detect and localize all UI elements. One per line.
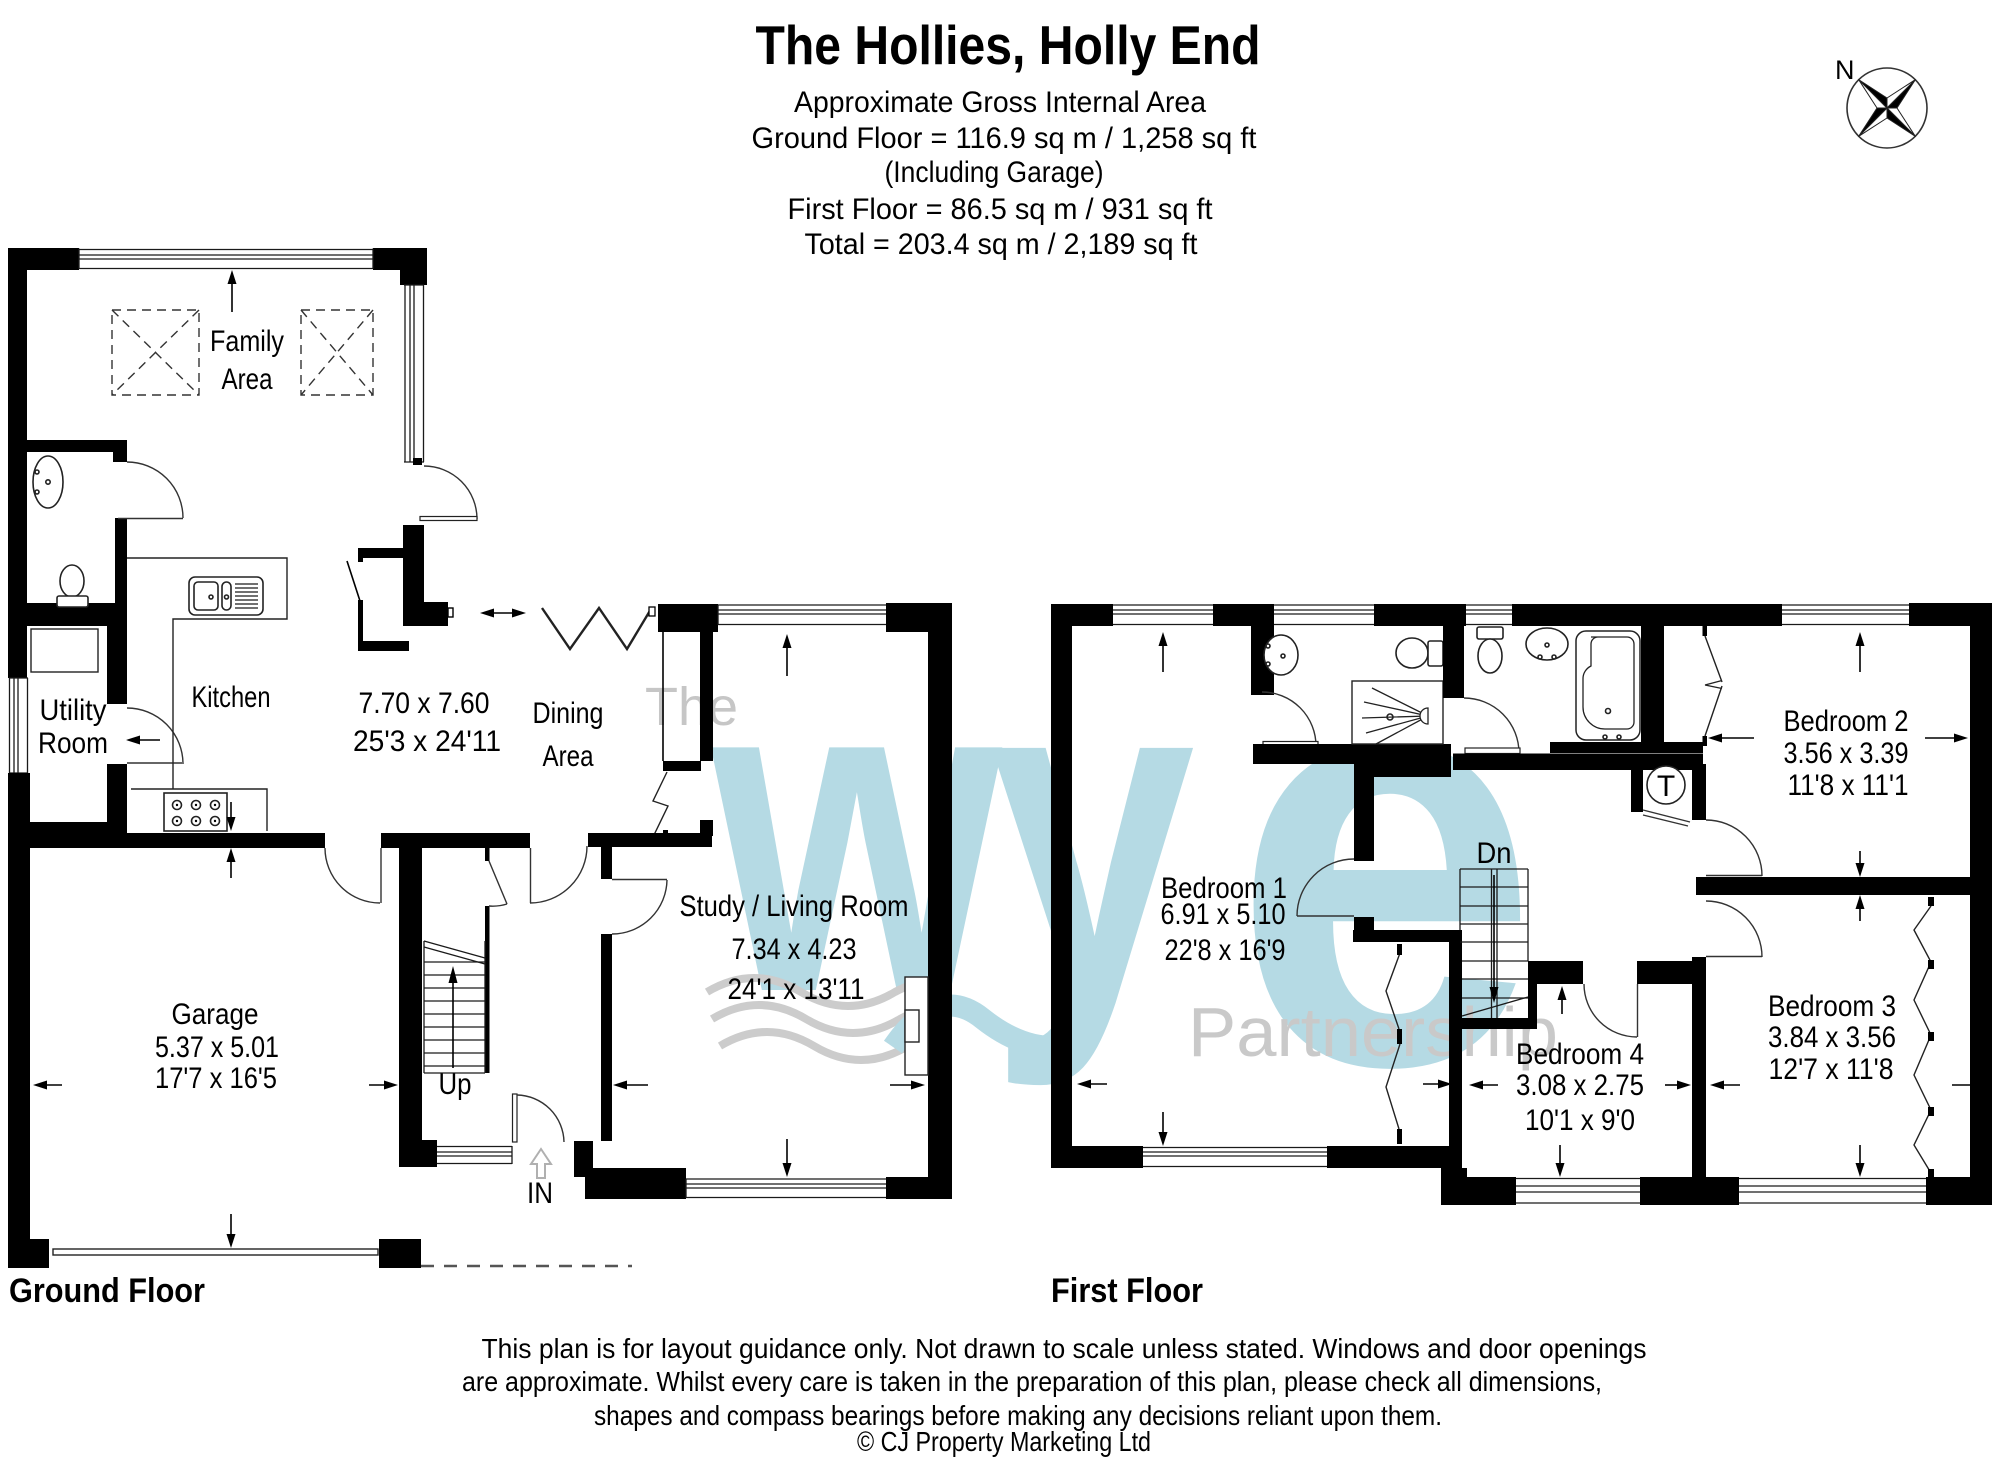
svg-text:T: T <box>1657 770 1675 803</box>
svg-text:25'3 x 24'11: 25'3 x 24'11 <box>353 725 501 758</box>
svg-text:Dining: Dining <box>533 697 604 730</box>
svg-text:Study / Living Room: Study / Living Room <box>680 890 909 923</box>
svg-text:12'7 x 11'8: 12'7 x 11'8 <box>1769 1053 1894 1086</box>
svg-text:Kitchen: Kitchen <box>192 681 271 714</box>
svg-text:22'8 x 16'9: 22'8 x 16'9 <box>1165 934 1286 967</box>
svg-text:IN: IN <box>527 1177 553 1210</box>
svg-text:7.34 x 4.23: 7.34 x 4.23 <box>732 933 857 966</box>
svg-text:N: N <box>1835 55 1855 85</box>
svg-text:First Floor: First Floor <box>1051 1272 1203 1310</box>
svg-text:Ground Floor: Ground Floor <box>9 1272 205 1310</box>
svg-text:This plan is for layout guidan: This plan is for layout guidance only. N… <box>482 1333 1647 1364</box>
svg-text:11'8 x 11'1: 11'8 x 11'1 <box>1788 769 1909 802</box>
svg-text:The Hollies, Holly End: The Hollies, Holly End <box>756 14 1261 76</box>
svg-text:17'7 x 16'5: 17'7 x 16'5 <box>155 1062 277 1095</box>
svg-text:Garage: Garage <box>172 998 259 1031</box>
svg-text:© CJ Property Marketing Ltd: © CJ Property Marketing Ltd <box>857 1426 1151 1457</box>
svg-text:Dn: Dn <box>1477 837 1512 870</box>
svg-text:24'1 x 13'11: 24'1 x 13'11 <box>728 973 865 1006</box>
svg-text:Ground Floor = 116.9 sq m / 1,: Ground Floor = 116.9 sq m / 1,258 sq ft <box>752 122 1258 155</box>
svg-text:First Floor = 86.5 sq m / 931: First Floor = 86.5 sq m / 931 sq ft <box>788 193 1214 226</box>
svg-text:Area: Area <box>543 740 594 773</box>
svg-text:(Including Garage): (Including Garage) <box>885 156 1104 189</box>
svg-text:Family: Family <box>210 325 284 358</box>
svg-text:Bedroom 3: Bedroom 3 <box>1768 990 1896 1023</box>
svg-text:3.08 x 2.75: 3.08 x 2.75 <box>1516 1069 1644 1102</box>
svg-text:6.91 x 5.10: 6.91 x 5.10 <box>1161 898 1286 931</box>
svg-text:Room: Room <box>38 727 108 760</box>
svg-text:5.37 x 5.01: 5.37 x 5.01 <box>155 1031 279 1064</box>
svg-text:10'1 x 9'0: 10'1 x 9'0 <box>1525 1104 1635 1137</box>
svg-text:Approximate Gross Internal Are: Approximate Gross Internal Area <box>794 86 1206 119</box>
svg-text:are approximate. Whilst every: are approximate. Whilst every care is ta… <box>462 1366 1602 1397</box>
svg-text:Bedroom 2: Bedroom 2 <box>1784 705 1909 738</box>
svg-text:Area: Area <box>222 363 273 396</box>
svg-text:7.70 x 7.60: 7.70 x 7.60 <box>359 687 490 720</box>
svg-text:3.56 x 3.39: 3.56 x 3.39 <box>1784 737 1909 770</box>
svg-text:Bedroom 4: Bedroom 4 <box>1516 1038 1644 1071</box>
svg-text:Total = 203.4 sq m / 2,189 sq: Total = 203.4 sq m / 2,189 sq ft <box>805 228 1199 261</box>
svg-text:y: y <box>989 576 1197 1090</box>
svg-text:Utility: Utility <box>40 694 107 727</box>
svg-text:Up: Up <box>439 1068 472 1101</box>
svg-text:3.84 x 3.56: 3.84 x 3.56 <box>1768 1021 1896 1054</box>
